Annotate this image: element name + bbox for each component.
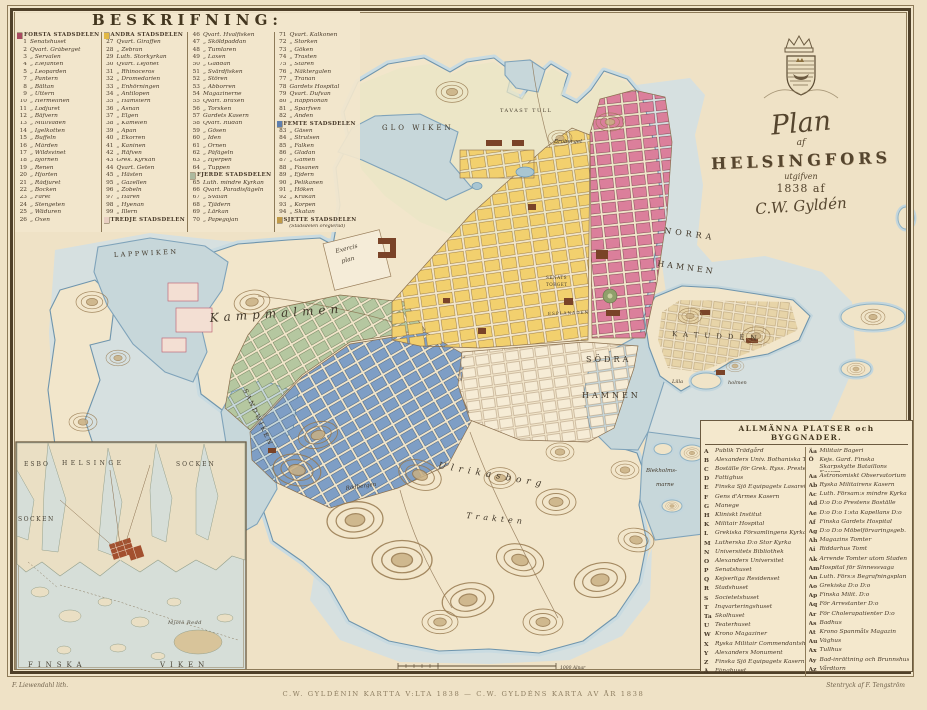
legend-row: 17„ Wildsvinet bbox=[17, 150, 99, 157]
legend-row: 90„ Pelikanen bbox=[277, 180, 359, 187]
legend-row: AyBad-inrättning och Brunnshus bbox=[809, 656, 910, 665]
legend-row: QKejserliga Residenset bbox=[704, 576, 805, 585]
legend-row: 89„ Ejdern bbox=[277, 172, 359, 179]
legend-row: 42„ Räfven bbox=[104, 150, 186, 157]
legend-row: 32„ Dromedarien bbox=[104, 76, 186, 83]
legend-row: WKrono Magaziner bbox=[704, 631, 805, 640]
legend-row: ÄaMilitair Bageri bbox=[809, 447, 910, 456]
legend-row: 92„ Kråkan bbox=[277, 195, 359, 202]
legend-row: 27Qvart. Giraffen bbox=[104, 39, 186, 46]
legend-row: 86„ Gladan bbox=[277, 150, 359, 157]
legend-row: 85„ Falken bbox=[277, 143, 359, 150]
legend-row: 45„ Hästen bbox=[104, 172, 186, 179]
legend-row: AoGrekiska D:o D:o bbox=[809, 582, 910, 591]
inset-label-mjolo-redd: Mjölö Redd bbox=[167, 620, 202, 626]
legend-row: 13„ Mullvaden bbox=[17, 121, 99, 128]
legend-row: 77„ Tranan bbox=[277, 76, 359, 83]
legend-row: 14„ Igelkotten bbox=[17, 128, 99, 135]
legend-row: 73„ Göken bbox=[277, 47, 359, 54]
legend-row: GManege bbox=[704, 502, 805, 511]
legend-row: AgD:o D:o Möbelförvaringsgeb. bbox=[809, 527, 910, 536]
legend-row: AcLuth. Försam:s mindre Kyrka bbox=[809, 491, 910, 500]
legend-row: 94„ Skatan bbox=[277, 209, 359, 216]
legend-row: 82„ Anden bbox=[277, 113, 359, 120]
legend-row: 69„ Lärkan bbox=[190, 209, 272, 216]
legend-row: TaSkolhuset bbox=[704, 612, 805, 621]
legend-row: 98„ Hyenan bbox=[104, 202, 186, 209]
legend-row: AqFör Arrestanter D:o bbox=[809, 601, 910, 610]
legend-row: 62„ Påfågeln bbox=[190, 150, 272, 157]
legend-row: 3„ Servalen bbox=[17, 54, 99, 61]
legend-row: 41„ Kaninen bbox=[104, 143, 186, 150]
legend-row: LGrekiska Församlingens Kyrka bbox=[704, 530, 805, 539]
legend-row: EFinska Sjö Equipagets Lasarett bbox=[704, 484, 805, 493]
legend-row: FGens d'Armes Kasern bbox=[704, 493, 805, 502]
legend-row: OAlexanders Universitet bbox=[704, 557, 805, 566]
legend-row: 5„ Leoparden bbox=[17, 69, 99, 76]
legend-row: 59„ Gösen bbox=[190, 128, 272, 135]
allmanna-legend: ALLMÄNNA PLATSER och BYGGNADER. APublik … bbox=[700, 420, 913, 672]
legend-row: 22„ Bocken bbox=[17, 187, 99, 194]
district-swatch-icon bbox=[277, 121, 282, 127]
beskrifning-column-3: 46Qvart. Hvalfisken47„ Sköldpaddan48„ Tu… bbox=[187, 32, 274, 232]
legend-row: 30Qvart. Lejonet bbox=[104, 62, 186, 69]
legend-row: 67„ Svalan bbox=[190, 195, 272, 202]
beskrifning-column-1: FÖRSTA STADSDELEN1Senatshuset2Qvart. Grå… bbox=[15, 32, 101, 232]
legend-row: 68„ Tjädern bbox=[190, 202, 272, 209]
legend-row: 20„ Hjorten bbox=[17, 172, 99, 179]
inset-label-socken-left: SOCKEN bbox=[18, 516, 55, 523]
legend-row: AaAstronomiskt Observatorium bbox=[809, 472, 910, 481]
label-blekholmarne-1: Blekholms- bbox=[645, 468, 677, 474]
legend-row: 78Gardets Hospital bbox=[277, 84, 359, 91]
legend-row: CBoställe för Grek. Ryss. Prester bbox=[704, 465, 805, 474]
legend-row: 93„ Korpen bbox=[277, 202, 359, 209]
legend-row: 75„ Staren bbox=[277, 62, 359, 69]
legend-row: 57Gardets Kasern bbox=[190, 113, 272, 120]
legend-row: 15„ Buffeln bbox=[17, 135, 99, 142]
label-blekholmarne-2: marne bbox=[656, 482, 675, 488]
legend-row: AtKrono Spanmåls Magazin bbox=[809, 628, 910, 637]
legend-row: SJETTE STADSDELEN bbox=[277, 217, 359, 224]
legend-row: 7„ Pantern bbox=[17, 76, 99, 83]
beskrifning-title: BESKRIFNING: bbox=[15, 11, 360, 29]
legend-row: 21„ Rådjuret bbox=[17, 180, 99, 187]
label-torget: TORGET bbox=[546, 282, 568, 287]
legend-row: 51„ Svärdfisken bbox=[190, 69, 272, 76]
legend-row: 58Qvart. Rudan bbox=[190, 121, 272, 128]
legend-row: 4„ Elefanten bbox=[17, 62, 99, 69]
legend-row: 43Grek. Kyrkan bbox=[104, 158, 186, 165]
legend-row: 36„ Åsnan bbox=[104, 106, 186, 113]
legend-row: 24„ Stengeten bbox=[17, 202, 99, 209]
beskrifning-column-2: ANDRA STADSDELEN27Qvart. Giraffen28„ Zeb… bbox=[101, 32, 188, 232]
label-holmen: holmen bbox=[728, 380, 747, 386]
legend-row: FÖRSTA STADSDELEN bbox=[17, 32, 99, 39]
legend-row: AzVårdtorn bbox=[809, 665, 910, 674]
legend-row: 79Qvart. Dufvan bbox=[277, 91, 359, 98]
coat-of-arms-icon bbox=[756, 34, 846, 106]
legend-row: 52„ Stören bbox=[190, 76, 272, 83]
district-swatch-icon bbox=[104, 217, 109, 223]
label-glo-wiken: GLO WIKEN bbox=[382, 124, 454, 132]
legend-row: 16„ Mården bbox=[17, 143, 99, 150]
legend-row: MLutherska D:o Stor Kyrka bbox=[704, 539, 805, 548]
legend-row: TREDJE STADSDELEN bbox=[104, 217, 186, 224]
legend-row: 63„ Hjerpen bbox=[190, 158, 272, 165]
legend-row: 53„ Abborren bbox=[190, 84, 272, 91]
inset-label-helsinge: HELSINGE bbox=[62, 460, 125, 467]
cartouche-utgifven: utgifven bbox=[690, 172, 912, 181]
legend-row: 23„ Fåret bbox=[17, 195, 99, 202]
legend-row: UTeaterhuset bbox=[704, 622, 805, 631]
legend-row: 95„ Gazellen bbox=[104, 180, 186, 187]
legend-row: TInqvarteringshuset bbox=[704, 603, 805, 612]
legend-row: 39„ Apan bbox=[104, 128, 186, 135]
label-tavast-tull: TAVAST TULL bbox=[500, 108, 552, 114]
legend-row: SSocietetshuset bbox=[704, 594, 805, 603]
label-lilla: Lilla bbox=[671, 379, 683, 385]
allmanna-title: ALLMÄNNA PLATSER och BYGGNADER. bbox=[705, 424, 908, 445]
legend-row: BAlexanders Univ. Bothaniska Trädg. bbox=[704, 456, 805, 465]
legend-row: 87„ Gamen bbox=[277, 158, 359, 165]
reproduction-caption: C.W. GYLDÉNIN KARTTA V:LTA 1838 — C.W. G… bbox=[0, 690, 927, 698]
legend-row: PSenatshuset bbox=[704, 566, 805, 575]
allmanna-column-right: ÄaMilitair BageriÖKejs. Gard. Finska Ska… bbox=[805, 447, 910, 677]
legend-row: AuVåghus bbox=[809, 638, 910, 647]
legend-row: YAlexanders Monument bbox=[704, 649, 805, 658]
legend-row: 80„ Rapphönan bbox=[277, 99, 359, 106]
legend-row: ÅFånghuset bbox=[704, 668, 805, 677]
beskrifning-legend: BESKRIFNING: FÖRSTA STADSDELEN1Senatshus… bbox=[15, 11, 360, 232]
district-swatch-icon bbox=[17, 33, 22, 39]
legend-row: 71Qvart. Kalkonen bbox=[277, 32, 359, 39]
label-sodra: SÖDRA bbox=[586, 355, 631, 364]
beskrifning-column-4: 71Qvart. Kalkonen72„ Storken73„ Göken74„… bbox=[274, 32, 361, 232]
legend-row: AxTullhus bbox=[809, 647, 910, 656]
legend-row: 2Qvart. Gråberget bbox=[17, 47, 99, 54]
legend-row: 18„ Björnen bbox=[17, 158, 99, 165]
legend-row: FJERDE STADSDELEN bbox=[190, 172, 272, 179]
legend-row: HKliniskt Institut bbox=[704, 511, 805, 520]
legend-row: 96„ Zobeln bbox=[104, 187, 186, 194]
legend-row: 26„ Oxen bbox=[17, 217, 99, 224]
legend-row: 72„ Storken bbox=[277, 39, 359, 46]
inset-label-socken-top: SOCKEN bbox=[176, 461, 216, 468]
legend-row: 61„ Örnen bbox=[190, 143, 272, 150]
legend-row: 44Qvart. Geten bbox=[104, 165, 186, 172]
legend-row: 28„ Zebran bbox=[104, 47, 186, 54]
legend-row: 38„ Kamelen bbox=[104, 121, 186, 128]
scale-label: 1000 Alnar bbox=[560, 665, 586, 671]
lithographer-credit: F. Liewendahl lith. bbox=[12, 682, 68, 689]
legend-row: 66Qvart. Paradisfågeln bbox=[190, 187, 272, 194]
inset-map: ESBO HELSINGE SOCKEN SOCKEN FINSKA VIKEN… bbox=[16, 442, 246, 670]
legend-row: ApFinska Milit. D:o bbox=[809, 592, 910, 601]
legend-row: 99„ Illern bbox=[104, 209, 186, 216]
legend-row: AbRyska Militairens Kasern bbox=[809, 481, 910, 490]
allmanna-column-left: APublik TrädgårdBAlexanders Univ. Bothan… bbox=[704, 447, 805, 677]
legend-row: 40„ Ekorren bbox=[104, 135, 186, 142]
legend-row: 25„ Wäduren bbox=[17, 209, 99, 216]
legend-row: AeD:o D:o 1:sta Kapellans D:o bbox=[809, 509, 910, 518]
legend-row: 74„ Trasten bbox=[277, 54, 359, 61]
legend-row: ÖKejs. Gard. Finska Skarpskytte Bataillo… bbox=[809, 456, 910, 472]
legend-row: (Stadsdelen oreglerad) bbox=[277, 224, 359, 231]
legend-row: AhMagazins Tomter bbox=[809, 537, 910, 546]
legend-row: 91„ Höken bbox=[277, 187, 359, 194]
cartouche-city-title: HELSINGFORS bbox=[690, 147, 913, 174]
legend-row: 9„ Uttern bbox=[17, 91, 99, 98]
legend-row: DFattighus bbox=[704, 475, 805, 484]
legend-row: 11„ Lodjuret bbox=[17, 106, 99, 113]
inset-label-finska: FINSKA bbox=[28, 661, 87, 669]
scale-bar bbox=[398, 663, 556, 669]
legend-row: 49„ Laxen bbox=[190, 54, 272, 61]
legend-row: 33„ Enhörningen bbox=[104, 84, 186, 91]
legend-row: ArFör Cholerapatienter D:o bbox=[809, 610, 910, 619]
legend-row: 97„ Haren bbox=[104, 195, 186, 202]
legend-row: KMilitair Hospital bbox=[704, 521, 805, 530]
legend-row: AdD:o D:o Prestens Boställe bbox=[809, 500, 910, 509]
legend-row: 81„ Sparfven bbox=[277, 106, 359, 113]
legend-row: AsBadhus bbox=[809, 619, 910, 628]
legend-row: RStadshuset bbox=[704, 585, 805, 594]
legend-row: APublik Trädgård bbox=[704, 447, 805, 456]
district-swatch-icon bbox=[104, 33, 109, 39]
legend-row: 70„ Papegojan bbox=[190, 217, 272, 224]
title-cartouche: Plan af HELSINGFORS utgifven 1838 af C.W… bbox=[690, 34, 912, 215]
district-swatch-icon bbox=[190, 173, 195, 179]
printer-credit: Stentryck af F. Tengström bbox=[826, 682, 905, 689]
legend-row: 54Magazinerne bbox=[190, 91, 272, 98]
map-sheet: 1000 Alnar bbox=[0, 0, 927, 710]
legend-row: AmHospital för Sinnessvaga bbox=[809, 564, 910, 573]
legend-row: 47„ Sköldpaddan bbox=[190, 39, 272, 46]
legend-row: 88„ Fasanen bbox=[277, 165, 359, 172]
legend-row: 12„ Bäfvern bbox=[17, 113, 99, 120]
legend-row: 56„ Torsken bbox=[190, 106, 272, 113]
legend-row: AkArrende Tomter utom Staden bbox=[809, 555, 910, 564]
legend-row: ZFinska Sjö Equipagets Kasern bbox=[704, 658, 805, 667]
legend-row: 34„ Antilopen bbox=[104, 91, 186, 98]
legend-row: 35„ Hamstern bbox=[104, 99, 186, 106]
legend-row: 8„ Bältan bbox=[17, 84, 99, 91]
legend-row: 48„ Tumlaren bbox=[190, 47, 272, 54]
legend-row: 46Qvart. Hvalfisken bbox=[190, 32, 272, 39]
legend-row: 60„ Iden bbox=[190, 135, 272, 142]
legend-row: NUniversitets Bibliothek bbox=[704, 548, 805, 557]
legend-row: 64„ Tuppen bbox=[190, 165, 272, 172]
legend-row: XRyska Militair Commendantshuset bbox=[704, 640, 805, 649]
inset-label-esbo: ESBO bbox=[24, 461, 50, 468]
legend-row: AiRiddarhus Tomt bbox=[809, 546, 910, 555]
legend-row: 65Luth. mindre Kyrkan bbox=[190, 180, 272, 187]
legend-row: AnLuth. Förs:s Begrafningsplan bbox=[809, 573, 910, 582]
legend-row: FEMTE STADSDELEN bbox=[277, 121, 359, 128]
legend-row: 83„ Gåsen bbox=[277, 128, 359, 135]
legend-row: 31„ Rhinoceros bbox=[104, 69, 186, 76]
legend-row: 76„ Näktergalen bbox=[277, 69, 359, 76]
legend-row: 50„ Gäddan bbox=[190, 62, 272, 69]
legend-row: 10„ Hermelinen bbox=[17, 99, 99, 106]
legend-row: 1Senatshuset bbox=[17, 39, 99, 46]
inset-label-viken: VIKEN bbox=[159, 661, 209, 669]
legend-row: 55Qvart. Braxen bbox=[190, 99, 272, 106]
label-sodra-hamnen: HAMNEN bbox=[582, 391, 641, 400]
legend-row: 37„ Elgen bbox=[104, 113, 186, 120]
legend-row: 84„ Strutsen bbox=[277, 135, 359, 142]
legend-row: AfFinska Gardets Hospital bbox=[809, 518, 910, 527]
label-broberget: Broberget bbox=[553, 139, 583, 145]
label-senats: SENATS bbox=[546, 275, 567, 280]
legend-row: ANDRA STADSDELEN bbox=[104, 32, 186, 39]
legend-row: 19„ Renen bbox=[17, 165, 99, 172]
district-swatch-icon bbox=[277, 217, 282, 223]
legend-row: 29Luth. Storkyrkan bbox=[104, 54, 186, 61]
